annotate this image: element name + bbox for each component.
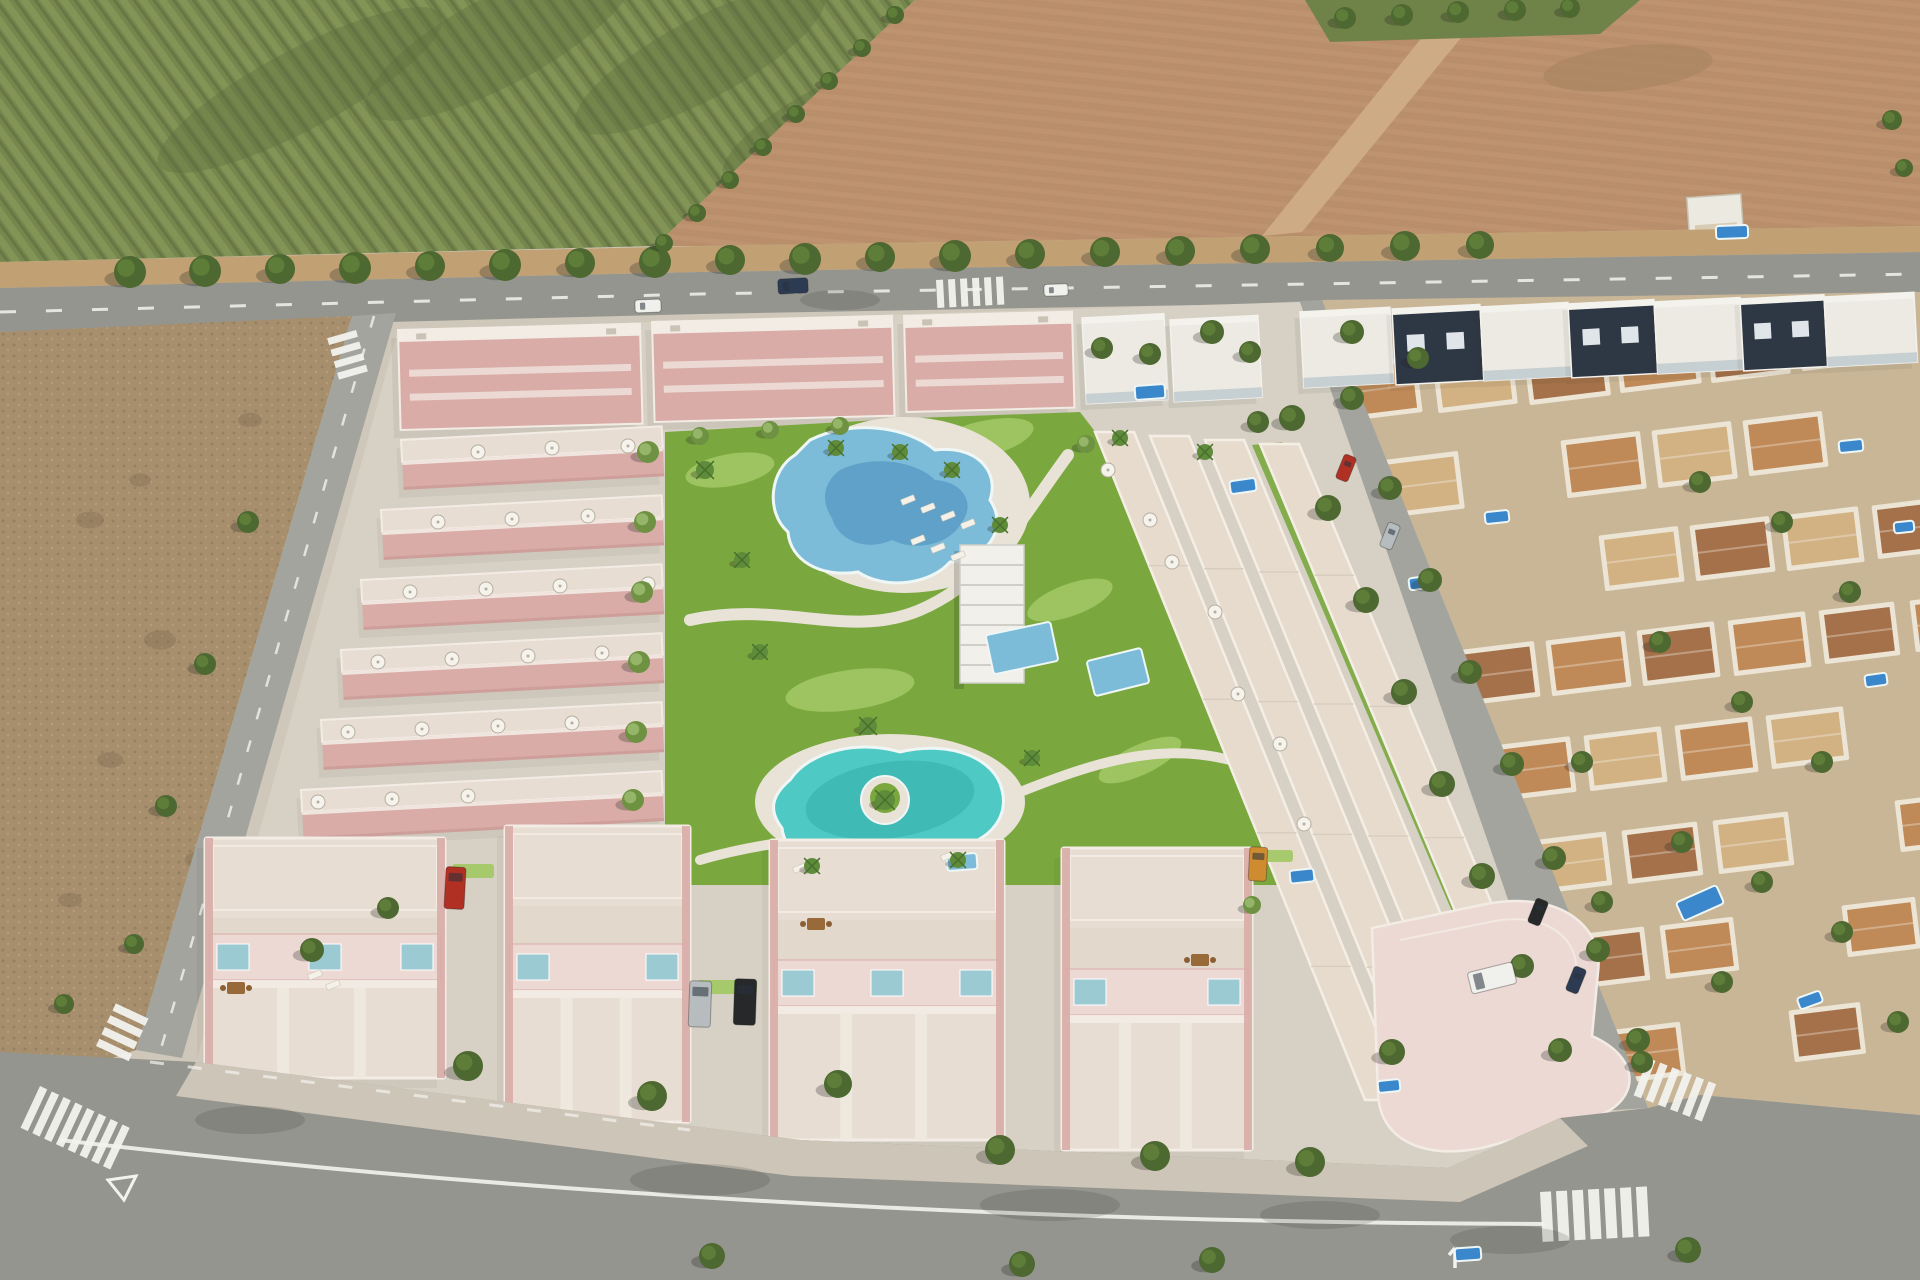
parasol xyxy=(1101,463,1115,477)
car-white xyxy=(635,299,661,313)
apartment-block xyxy=(645,316,895,430)
villa xyxy=(1788,1002,1866,1062)
villa xyxy=(1818,601,1900,664)
villa xyxy=(1674,716,1758,781)
car-navy xyxy=(778,278,809,295)
car-white xyxy=(1044,284,1068,297)
pool xyxy=(1455,1247,1482,1262)
parasol xyxy=(431,515,445,529)
villa xyxy=(1636,621,1720,686)
parasol xyxy=(385,792,399,806)
pool xyxy=(1893,520,1914,533)
parasol xyxy=(595,646,609,660)
parasol xyxy=(581,509,595,523)
parasol xyxy=(445,652,459,666)
car-black xyxy=(733,979,757,1026)
modern-townhouse xyxy=(1648,297,1744,380)
parasol xyxy=(403,585,417,599)
parasol xyxy=(1165,555,1179,569)
parasol xyxy=(479,582,493,596)
villa xyxy=(1689,516,1775,581)
townhouse-block xyxy=(197,838,445,1088)
apartment-block xyxy=(897,312,1075,421)
parasol xyxy=(471,445,485,459)
parasol xyxy=(1208,605,1222,619)
parasol xyxy=(1231,687,1245,701)
parasol xyxy=(565,716,579,730)
parasol xyxy=(371,655,385,669)
villa xyxy=(1712,811,1794,874)
parasol xyxy=(621,439,635,453)
villa xyxy=(1621,821,1703,884)
apartment-block xyxy=(391,324,643,438)
modern-townhouse xyxy=(1562,299,1658,384)
modern-townhouse xyxy=(1474,302,1572,387)
villa xyxy=(1560,431,1646,498)
parasol xyxy=(461,789,475,803)
parasol xyxy=(311,795,325,809)
villa xyxy=(1598,526,1684,591)
pool xyxy=(1135,384,1166,400)
parasol xyxy=(545,441,559,455)
pool xyxy=(1864,673,1887,688)
parasol xyxy=(521,649,535,663)
parasol xyxy=(1143,513,1157,527)
corner-building xyxy=(1372,901,1630,1151)
pool xyxy=(1289,868,1314,883)
modern-townhouse xyxy=(1386,304,1484,391)
villa xyxy=(1780,506,1864,571)
parasol xyxy=(505,512,519,526)
parasol xyxy=(415,722,429,736)
townhouse-block xyxy=(762,840,1004,1150)
pool xyxy=(1229,478,1257,494)
villa xyxy=(1742,411,1828,476)
villa xyxy=(1841,897,1920,958)
pool xyxy=(1484,510,1509,524)
parasol xyxy=(1297,817,1311,831)
pool xyxy=(1377,1079,1400,1093)
villa xyxy=(1727,611,1811,676)
parasol xyxy=(1273,737,1287,751)
aerial-photo-canvas xyxy=(0,0,1920,1280)
modern-townhouse xyxy=(1294,307,1394,394)
aerial-render xyxy=(0,0,1920,1280)
car-silver xyxy=(688,981,712,1028)
modern-townhouse xyxy=(1734,295,1828,378)
modern-townhouse xyxy=(1818,292,1918,373)
pool xyxy=(1838,439,1863,453)
parasol xyxy=(553,579,567,593)
parasol xyxy=(341,725,355,739)
villa xyxy=(1659,917,1739,980)
villa xyxy=(1583,726,1667,791)
parasol xyxy=(491,719,505,733)
villa xyxy=(1765,706,1849,769)
car-orange xyxy=(1248,847,1268,882)
villa xyxy=(1545,631,1631,696)
car-red xyxy=(444,867,466,910)
pool xyxy=(1716,225,1748,239)
townhouse-block xyxy=(1054,848,1252,1160)
